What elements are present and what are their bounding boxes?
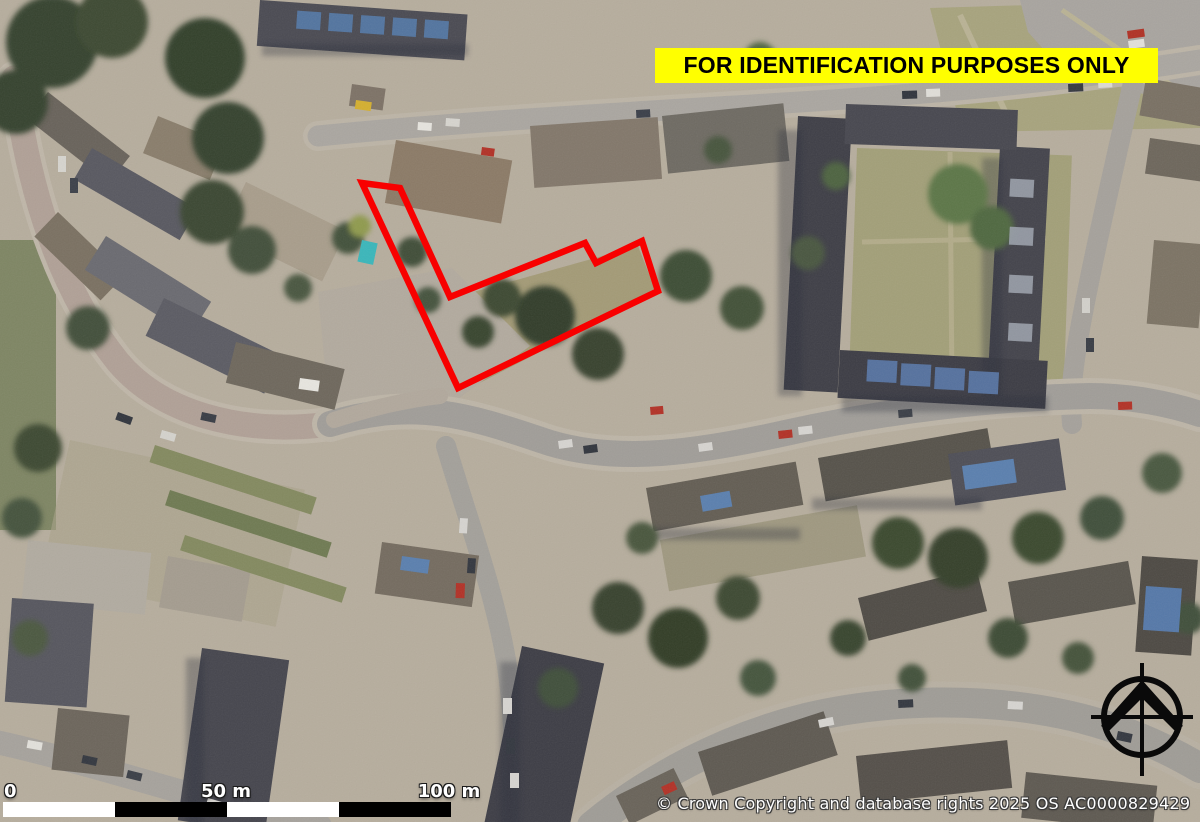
copyright-attribution: © Crown Copyright and database rights 20… bbox=[656, 795, 1190, 813]
identification-banner: FOR IDENTIFICATION PURPOSES ONLY bbox=[655, 48, 1158, 83]
site-boundary-layer bbox=[0, 0, 1200, 822]
site-boundary-polygon bbox=[362, 183, 658, 388]
map-viewport: FOR IDENTIFICATION PURPOSES ONLY 0 50 m … bbox=[0, 0, 1200, 822]
north-arrow-icon bbox=[1081, 653, 1200, 781]
